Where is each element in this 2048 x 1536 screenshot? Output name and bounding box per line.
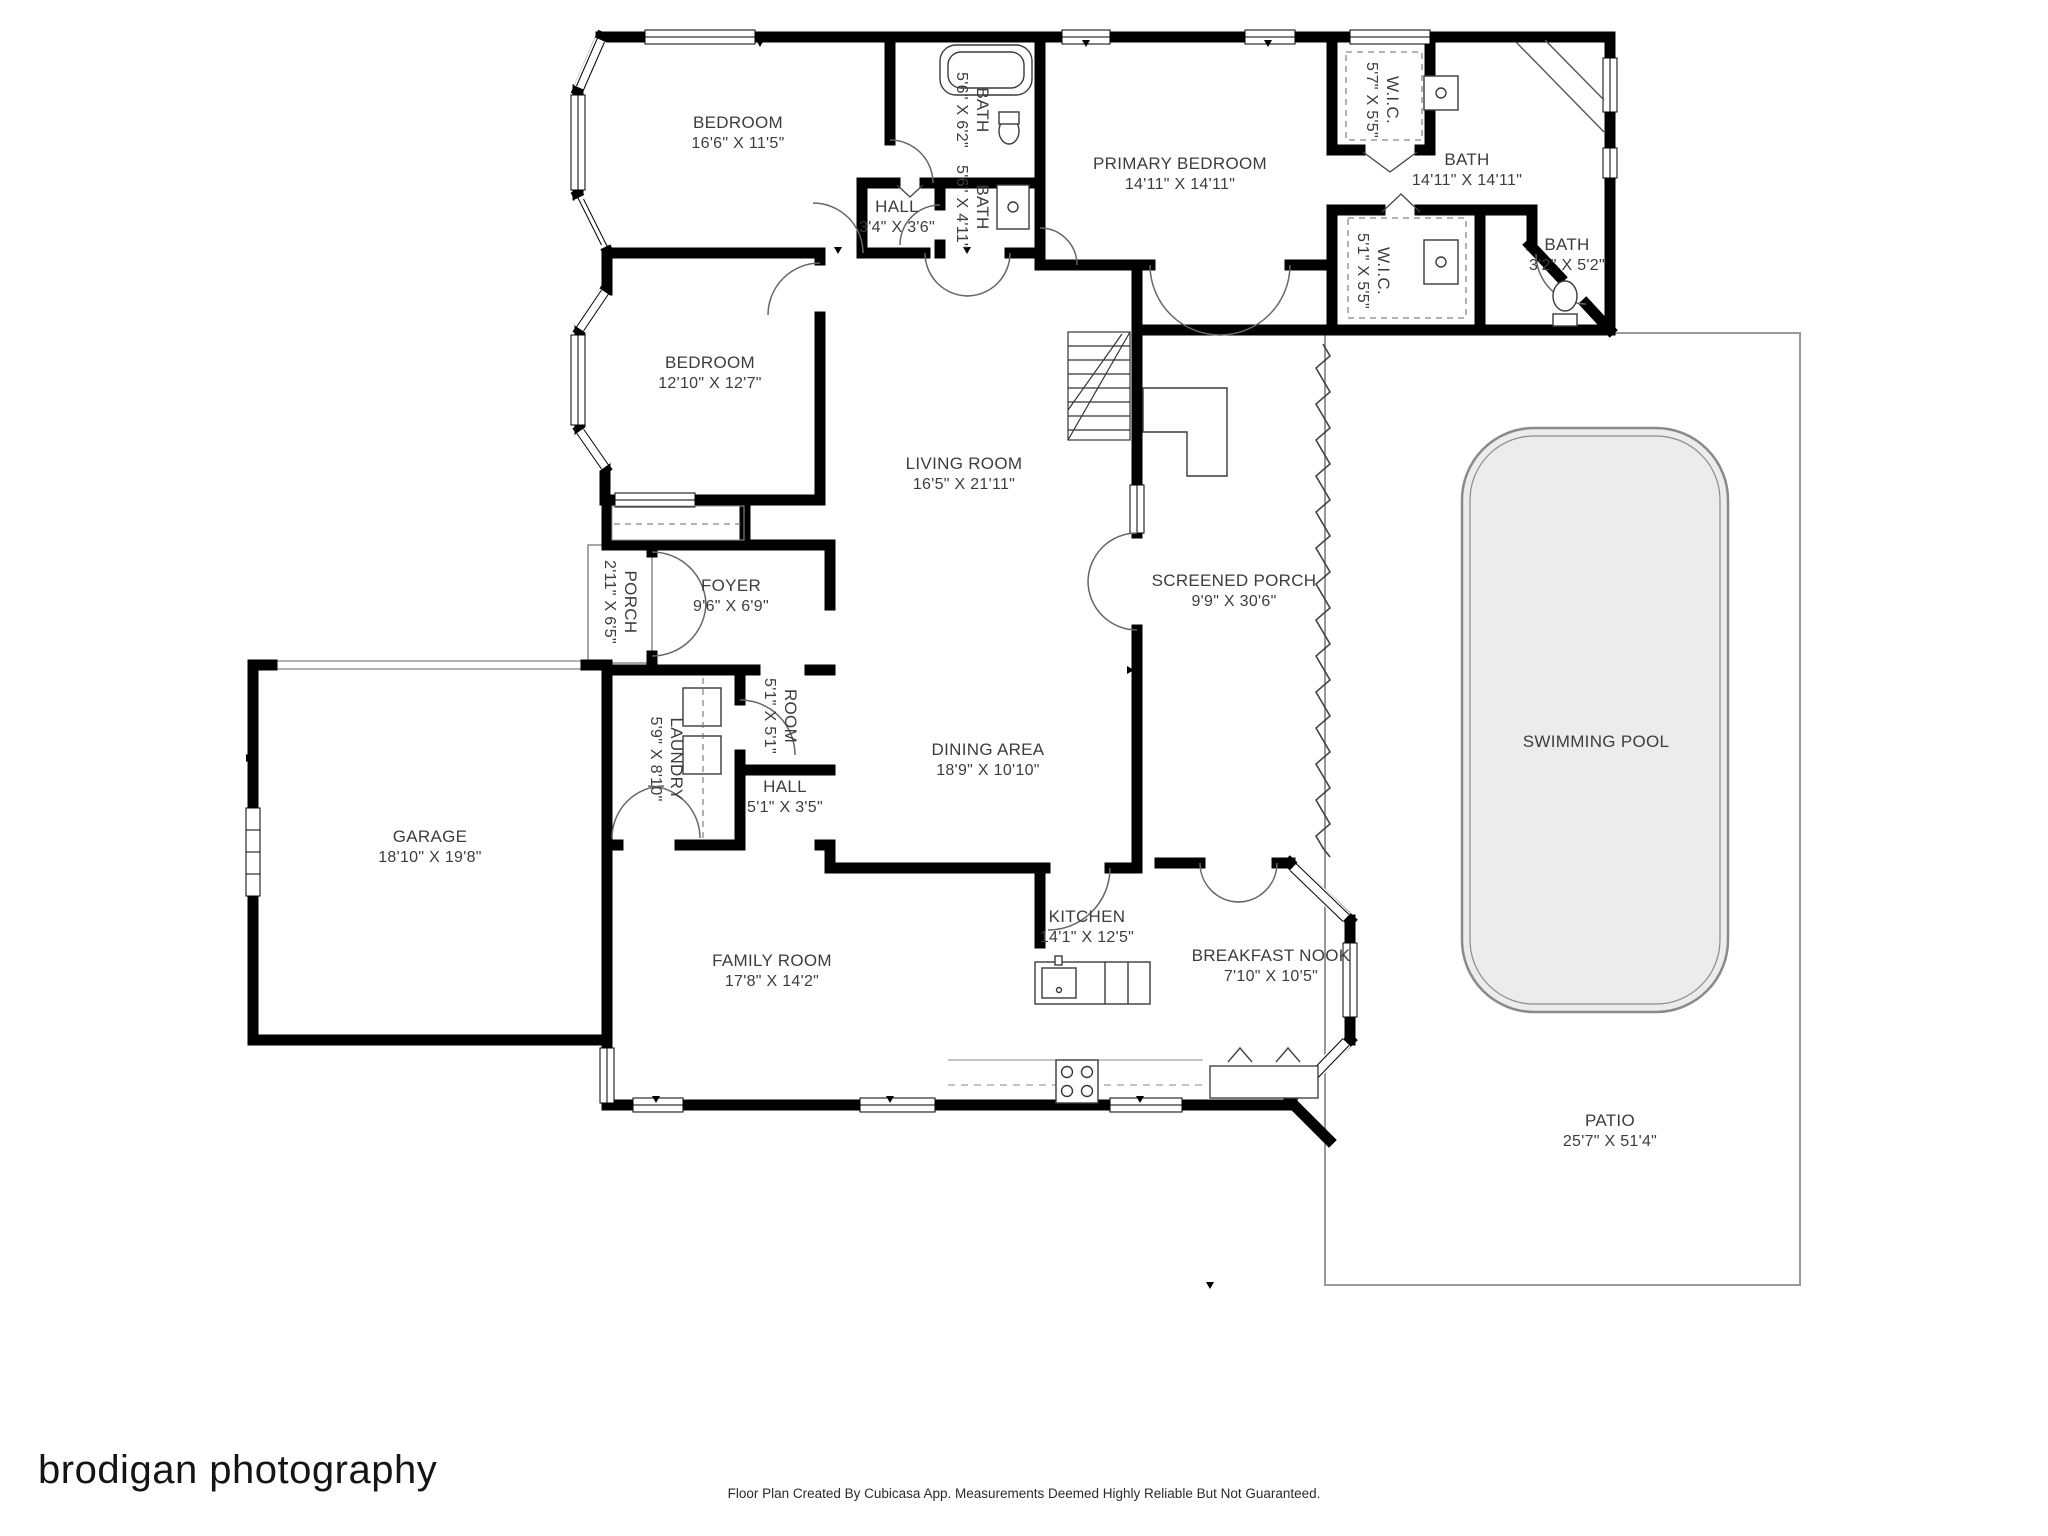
floorplan-page: BEDROOM 16'6" X 11'5" BATH 5'6" X 6'2" H… bbox=[0, 0, 2048, 1536]
staircase-icon bbox=[1068, 332, 1130, 440]
room-label-foyer: FOYER 9'6" X 6'9" bbox=[693, 575, 769, 617]
room-label-porch: PORCH 2'11" X 6'5" bbox=[599, 560, 641, 644]
window-seat bbox=[1210, 1048, 1318, 1098]
kitchen-island-icon bbox=[1035, 956, 1150, 1004]
room-label-room: ROOM 5'1" X 5'1" bbox=[759, 678, 801, 754]
sink-icon bbox=[1424, 76, 1458, 110]
room-label-laundry: LAUNDRY 5'9" X 8'10" bbox=[645, 716, 687, 801]
room-label-bedroom-2: BEDROOM 12'10" X 12'7" bbox=[658, 352, 762, 394]
room-label-hall-1: HALL 3'4" X 3'6" bbox=[859, 196, 935, 238]
room-label-kitchen: KITCHEN 14'1" X 12'5" bbox=[1040, 906, 1134, 948]
room-label-bath-primary: BATH 14'11" X 14'11" bbox=[1412, 149, 1522, 191]
room-label-wic-1: W.I.C. 5'7" X 5'5" bbox=[1361, 62, 1403, 138]
room-label-bath-3: BATH 3'2" X 5'2" bbox=[1529, 234, 1605, 276]
room-label-bath-2: BATH 5'6" X 4'11" bbox=[951, 165, 993, 249]
room-label-patio: PATIO 25'7" X 51'4" bbox=[1563, 1110, 1657, 1152]
room-label-bath-1: BATH 5'6" X 6'2" bbox=[951, 72, 993, 148]
room-label-living-room: LIVING ROOM 16'5" X 21'11" bbox=[906, 453, 1023, 495]
room-label-wic-2: W.I.C. 5'1" X 5'5" bbox=[1352, 233, 1394, 309]
credit-line: Floor Plan Created By Cubicasa App. Meas… bbox=[728, 1486, 1321, 1501]
sink-icon bbox=[997, 185, 1029, 229]
room-label-bedroom-1: BEDROOM 16'6" X 11'5" bbox=[691, 112, 784, 154]
room-label-swimming-pool: SWIMMING POOL bbox=[1523, 731, 1670, 753]
room-label-screened-porch: SCREENED PORCH 9'9" X 30'6" bbox=[1152, 570, 1317, 612]
driveway-line bbox=[272, 661, 586, 669]
garage-door-icon bbox=[246, 808, 260, 896]
room-label-family-room: FAMILY ROOM 17'8" X 14'2" bbox=[712, 950, 832, 992]
sink-icon bbox=[1424, 240, 1458, 284]
room-label-dining-area: DINING AREA 18'9" X 10'10" bbox=[932, 739, 1045, 781]
fireplace-icon bbox=[1143, 388, 1227, 476]
room-label-garage: GARAGE 18'10" X 19'8" bbox=[378, 826, 482, 868]
toilet-icon bbox=[999, 112, 1019, 144]
washer-dryer-icon bbox=[683, 678, 721, 838]
room-label-hall-2: HALL 5'1" X 3'5" bbox=[747, 776, 823, 818]
photographer-brand: brodigan photography bbox=[38, 1448, 437, 1493]
toilet-icon bbox=[1553, 281, 1577, 326]
swimming-pool-shape bbox=[1462, 428, 1728, 1012]
room-label-primary-bedroom: PRIMARY BEDROOM 14'11" X 14'11" bbox=[1093, 153, 1267, 195]
shower-icon bbox=[1516, 40, 1604, 132]
room-label-breakfast-nook: BREAKFAST NOOK 7'10" X 10'5" bbox=[1192, 945, 1351, 987]
stove-icon bbox=[1056, 1060, 1098, 1103]
